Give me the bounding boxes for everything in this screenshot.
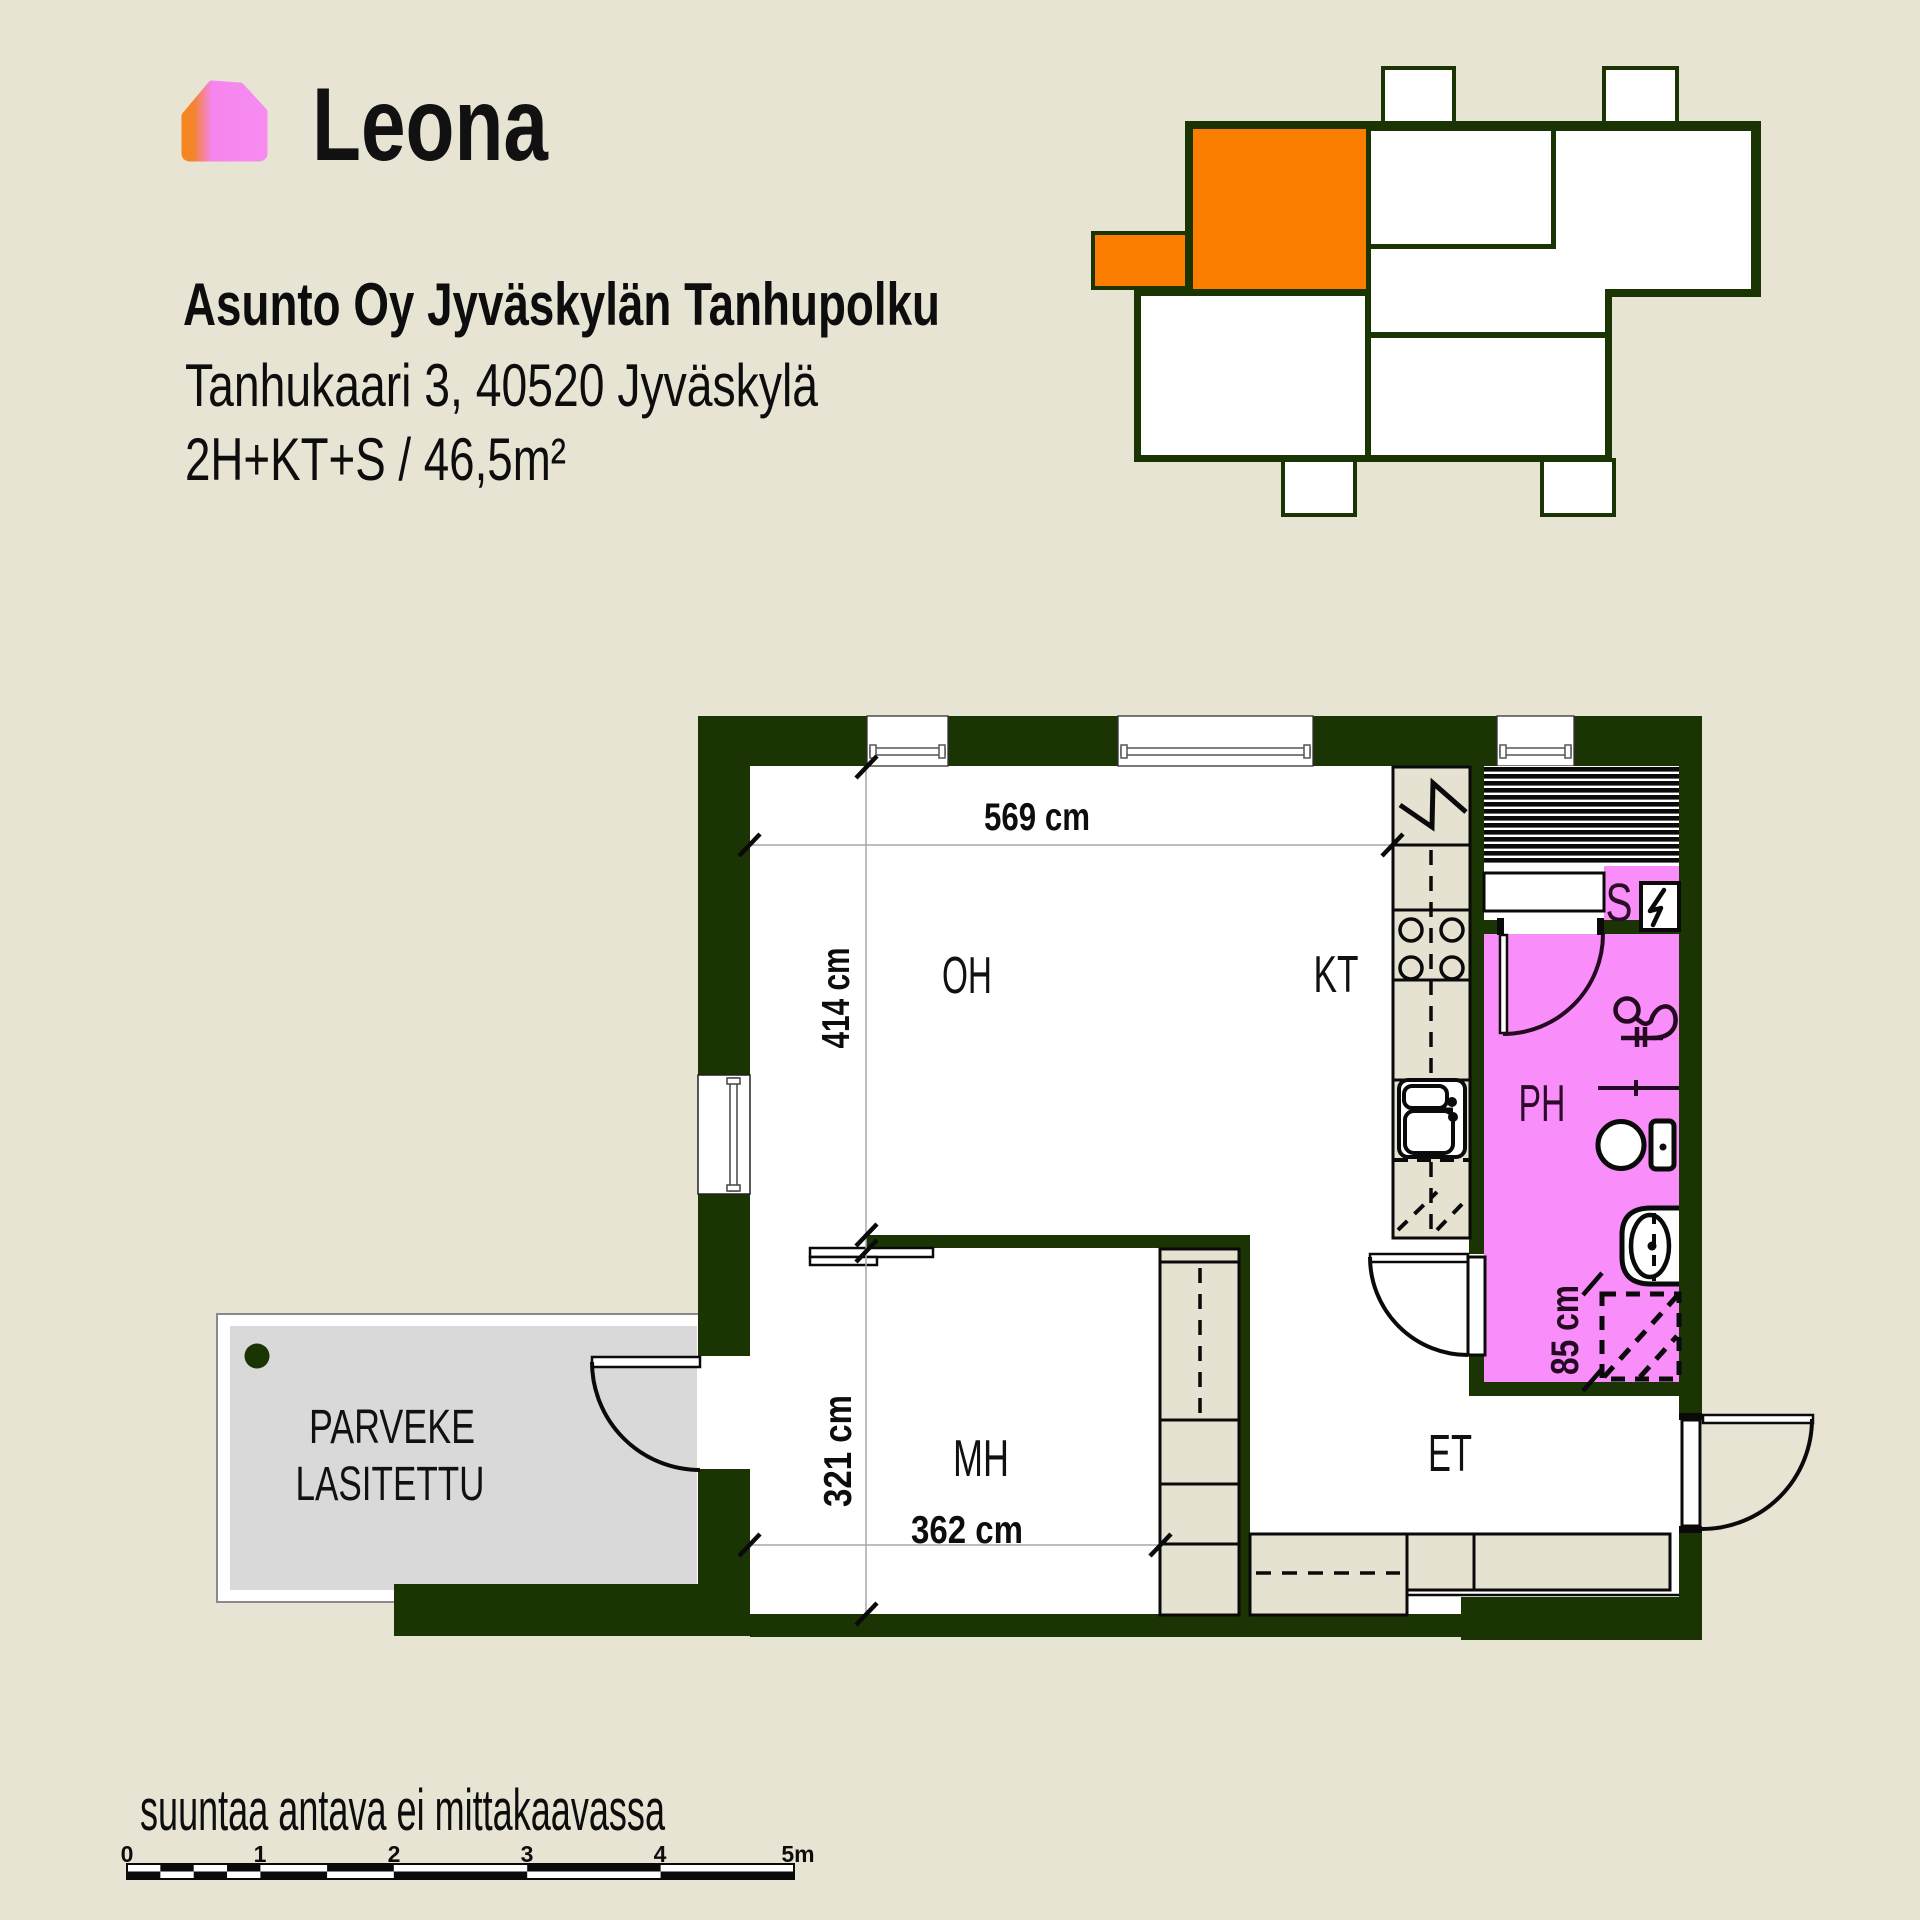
svg-text:KT: KT	[1314, 946, 1359, 1004]
svg-text:5m: 5m	[781, 1841, 814, 1867]
svg-text:LASITETTU: LASITETTU	[296, 1458, 485, 1511]
svg-text:321 cm: 321 cm	[817, 1395, 860, 1507]
svg-text:362 cm: 362 cm	[911, 1509, 1023, 1552]
svg-text:1: 1	[254, 1841, 267, 1867]
svg-text:Asunto Oy Jyväskylän Tanhupolk: Asunto Oy Jyväskylän Tanhupolku	[183, 271, 940, 338]
svg-text:3: 3	[521, 1841, 534, 1867]
svg-text:OH: OH	[942, 947, 992, 1005]
svg-text:ET: ET	[1428, 1425, 1472, 1483]
svg-text:0: 0	[121, 1841, 134, 1867]
svg-text:S: S	[1606, 873, 1633, 933]
svg-text:Tanhukaari 3, 40520 Jyväskylä: Tanhukaari 3, 40520 Jyväskylä	[185, 352, 818, 419]
svg-text:MH: MH	[953, 1430, 1009, 1488]
svg-text:85 cm: 85 cm	[1544, 1285, 1587, 1375]
svg-text:2H+KT+S / 46,5m²: 2H+KT+S / 46,5m²	[185, 426, 566, 493]
svg-text:suuntaa antava ei mittakaavass: suuntaa antava ei mittakaavassa	[140, 1778, 665, 1843]
svg-text:414 cm: 414 cm	[815, 948, 858, 1049]
svg-text:Leona: Leona	[312, 67, 549, 183]
svg-text:2: 2	[388, 1841, 401, 1867]
svg-text:PH: PH	[1519, 1075, 1566, 1133]
svg-text:PARVEKE: PARVEKE	[309, 1401, 475, 1454]
svg-text:4: 4	[654, 1841, 667, 1867]
svg-text:569 cm: 569 cm	[984, 796, 1090, 839]
